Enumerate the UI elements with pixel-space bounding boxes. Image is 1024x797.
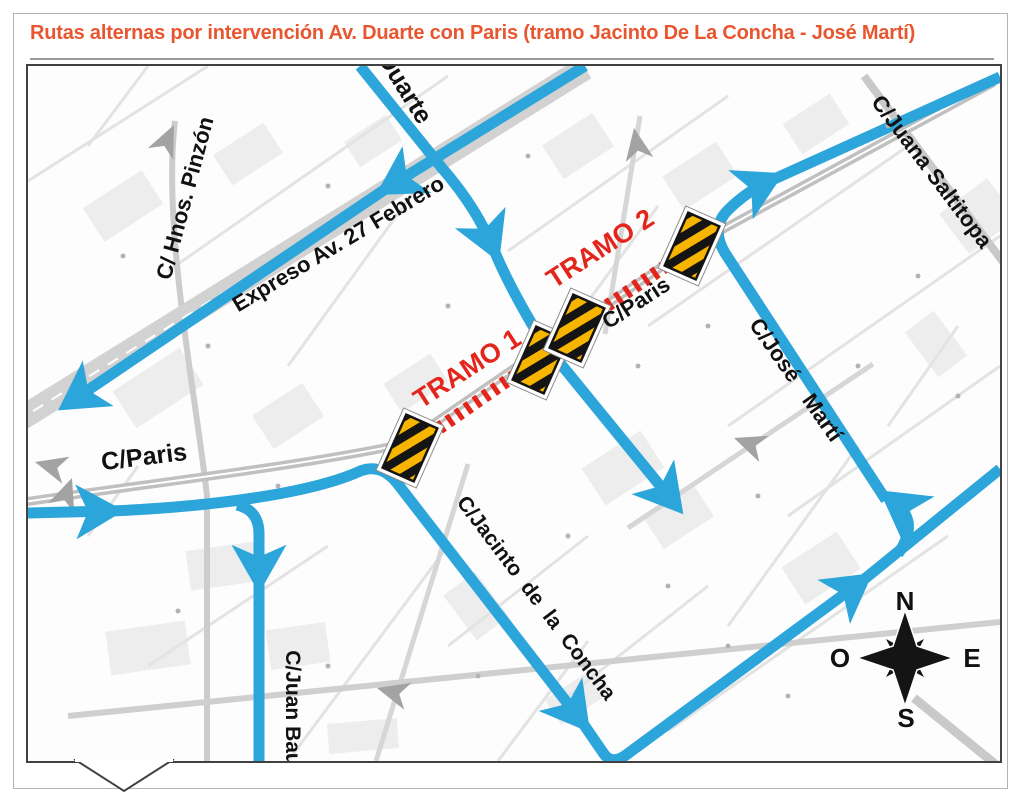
compass-n: N bbox=[896, 586, 915, 616]
notch-triangle bbox=[74, 759, 174, 791]
route-paris-west bbox=[28, 511, 111, 513]
gray-arrow-icon bbox=[148, 119, 187, 160]
frame-notch bbox=[68, 759, 180, 795]
street-label-jose-marti: C/José Martí bbox=[744, 313, 848, 447]
compass-e: E bbox=[963, 643, 980, 673]
corner-road bbox=[914, 698, 1000, 761]
compass-s: S bbox=[897, 703, 914, 733]
page-title: Rutas alternas por intervención Av. Duar… bbox=[30, 22, 990, 45]
route-turn-to-marti bbox=[890, 498, 908, 554]
infographic-page: Rutas alternas por intervención Av. Duar… bbox=[0, 0, 1024, 797]
route-map: Duarte C/ Hnos. Pinzón Expreso Av. 27 Fe… bbox=[28, 66, 1000, 761]
road-barriers bbox=[376, 206, 726, 488]
map-frame: Duarte C/ Hnos. Pinzón Expreso Av. 27 Fe… bbox=[26, 64, 1002, 763]
map-buildings bbox=[83, 94, 1000, 754]
compass-rose: N S E O bbox=[830, 586, 981, 733]
street-label-paris-left: C/Paris bbox=[100, 438, 189, 476]
compass-main-star bbox=[857, 610, 953, 706]
route-bottom-northeast bbox=[582, 581, 862, 760]
notch-mask bbox=[75, 759, 173, 762]
compass-o: O bbox=[830, 643, 850, 673]
title-separator bbox=[30, 58, 994, 60]
gray-arrow-icon bbox=[31, 448, 69, 483]
street-label-juan-bau: C/Juan Bau bbox=[281, 650, 304, 761]
